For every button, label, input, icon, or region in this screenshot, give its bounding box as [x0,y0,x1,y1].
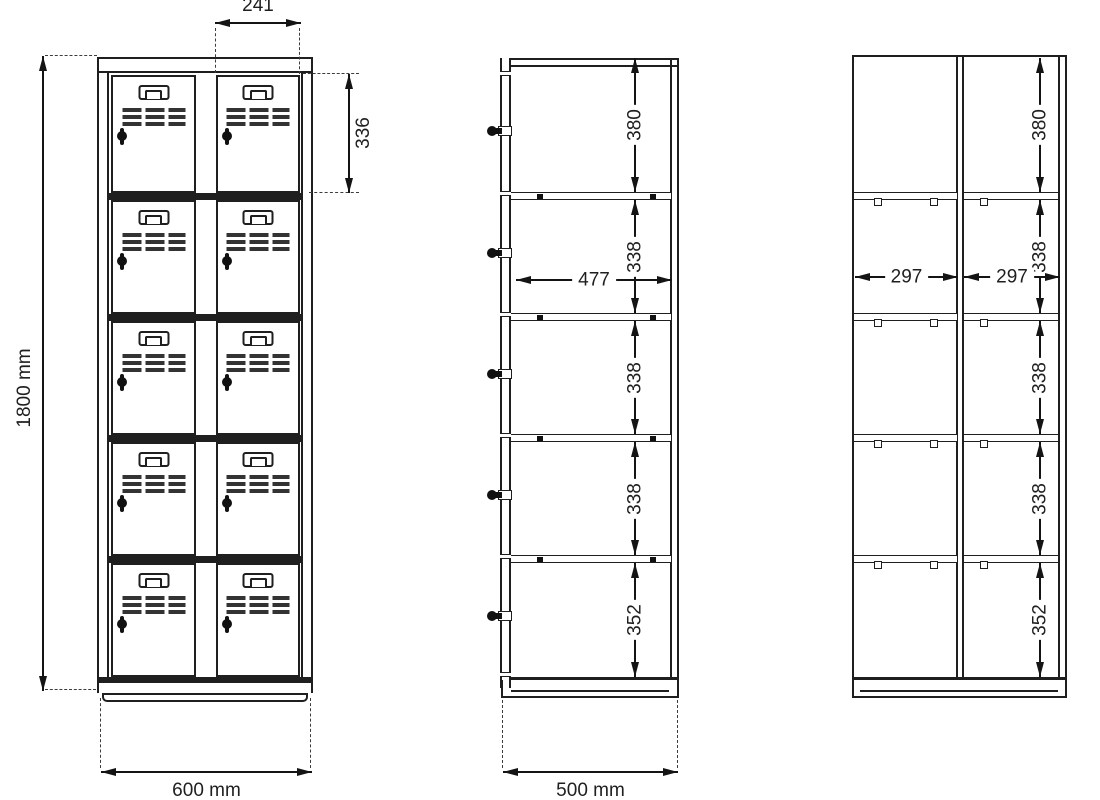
lock-icon [222,128,232,145]
hinge-mark [500,672,511,677]
shelf-clip [980,319,988,327]
dim-side-compartment-5: 352 [629,563,641,677]
dim-open-compartment-5-label: 352 [1031,600,1050,640]
lock-knob-icon [487,610,502,622]
cabinet-plinth [102,693,308,702]
dim-right-column-width: 297 [964,271,1060,283]
lock-knob-icon [487,247,502,259]
dim-open-compartment-3: 338 [1034,321,1046,434]
extension-line [45,689,96,690]
shelf [511,192,671,200]
extension-line [310,698,311,768]
shelf-clip [537,557,543,562]
door-row-divider [107,435,303,442]
side-plinth [501,680,679,698]
shelf-clip [650,436,656,441]
dim-side-compartment-2: 338 [629,200,641,313]
side-top-panel [509,58,679,67]
lock-icon [222,253,232,270]
shelf-clip [650,194,656,199]
dim-side-compartment-3: 338 [629,321,641,434]
shelf-clip [537,315,543,320]
dim-interior-depth: 477 [516,274,672,286]
dim-side-compartment-1-label: 380 [626,105,645,145]
locker-door [111,200,196,314]
extension-line [299,28,300,74]
frame-inner-line [107,73,109,677]
shelf-clip [930,319,938,327]
vent-grille [227,596,290,614]
vent-grille [227,475,290,493]
lock-icon [222,616,232,633]
dim-total-height-label: 1800 mm [14,348,36,427]
locker-door [216,442,300,556]
door-handle [138,452,169,467]
dim-side-compartment-2-label: 338 [626,237,645,277]
plinth-recess-line [511,690,669,692]
door-row-divider [107,556,303,563]
shelf [511,434,671,442]
shelf [854,434,957,442]
dim-total-width: 600 mm [101,766,312,778]
door-row-divider [107,314,303,321]
door-handle [243,85,274,100]
plinth-recess-line [860,690,1058,692]
lock-icon [222,374,232,391]
dim-left-column-width-label: 297 [885,268,929,287]
center-partition [956,57,958,677]
door-handle [138,85,169,100]
dim-left-column-width: 297 [855,271,958,283]
dim-total-width-label: 600 mm [172,781,241,800]
dim-door-width-label: 241 [242,0,274,15]
side-cabinet-body [509,58,679,680]
door-handle [243,452,274,467]
door-handle [243,573,274,588]
shelf [964,313,1058,321]
locker-door [216,200,300,314]
side-back-wall [670,58,672,678]
shelf-clip [650,315,656,320]
dim-side-compartment-5-label: 352 [626,600,645,640]
vent-grille [227,108,290,126]
dim-total-depth: 500 mm [503,766,678,778]
shelf-clip [537,436,543,441]
dim-open-compartment-3-label: 338 [1031,358,1050,398]
shelf-clip [874,561,882,569]
dim-open-compartment-4: 338 [1034,442,1046,555]
dim-open-compartment-2: 338 [1034,200,1046,313]
locker-door [111,321,196,435]
vent-grille [227,354,290,372]
shelf [964,434,1058,442]
shelf [511,555,671,563]
lock-knob-icon [487,125,502,137]
lock-knob-icon [487,489,502,501]
dim-right-column-width-label: 297 [990,268,1034,287]
lock-icon [117,253,127,270]
dim-door-width: 241 [215,17,301,29]
frame-inner-line [301,73,303,677]
shelf-clip [930,561,938,569]
lock-icon [222,495,232,512]
lock-icon [117,616,127,633]
frame-inner-line [1058,57,1060,678]
shelf [854,192,957,200]
extension-line [502,700,503,768]
extension-line [100,698,101,768]
center-partition [962,57,964,677]
hinge-mark [500,433,511,438]
door-row-divider [107,193,303,200]
shelf-clip [930,440,938,448]
shelf-clip [930,198,938,206]
lock-icon [117,374,127,391]
vent-grille [122,354,185,372]
dim-side-compartment-4: 338 [629,442,641,555]
shelf-clip [874,440,882,448]
lock-knob-icon [487,368,502,380]
hinge-mark [500,312,511,317]
locker-door [111,75,196,193]
cabinet-top-panel [97,57,313,73]
dim-total-depth-label: 500 mm [556,781,625,800]
hinge-mark [500,554,511,559]
dim-side-compartment-4-label: 338 [626,479,645,519]
shelf-clip [874,198,882,206]
dim-side-compartment-1: 380 [629,58,641,192]
vent-grille [122,596,185,614]
shelf [964,555,1058,563]
door-handle [243,331,274,346]
hinge-mark [500,191,511,196]
dim-total-height [37,56,49,691]
dim-open-compartment-1: 380 [1034,58,1046,192]
hinge-mark [500,71,511,76]
vent-grille [227,233,290,251]
dim-open-compartment-5: 352 [1034,563,1046,677]
vent-grille [122,233,185,251]
shelf [511,313,671,321]
shelf-clip [874,319,882,327]
door-handle [138,573,169,588]
vent-grille [122,108,185,126]
lock-icon [117,495,127,512]
shelf-clip [537,194,543,199]
shelf [854,313,957,321]
shelf-clip [980,198,988,206]
dim-open-compartment-4-label: 338 [1031,479,1050,519]
locker-door [216,321,300,435]
open-plinth [852,680,1067,698]
shelf [854,555,957,563]
dim-open-compartment-1-label: 380 [1031,105,1050,145]
vent-grille [122,475,185,493]
dim-side-compartment-3-label: 338 [626,358,645,398]
extension-line [45,55,97,56]
door-handle [138,210,169,225]
door-handle [243,210,274,225]
shelf [964,192,1058,200]
cabinet-base-frame [97,683,313,693]
extension-line [677,700,678,768]
locker-door [111,442,196,556]
extension-line [215,28,216,73]
locker-door [216,563,300,677]
shelf-clip [980,440,988,448]
dim-first-door-height-label: 336 [353,117,375,149]
locker-door [111,563,196,677]
shelf-clip [980,561,988,569]
door-handle [138,331,169,346]
lock-icon [117,128,127,145]
locker-technical-drawing: 241 336 1800 mm 600 mm [0,0,1100,800]
dim-interior-depth-label: 477 [572,271,616,290]
locker-door [216,75,300,193]
shelf-clip [650,557,656,562]
